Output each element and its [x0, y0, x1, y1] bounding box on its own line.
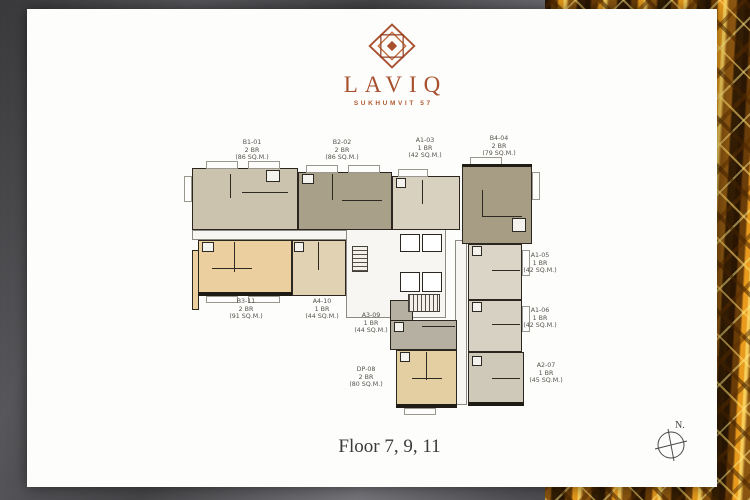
- interior-wall: [482, 190, 483, 216]
- balcony: [206, 161, 238, 169]
- balcony: [348, 165, 380, 173]
- floor-plan: B1-012 BR(86 SQ.M.) B2-022 BR(86 SQ.M.) …: [182, 130, 582, 425]
- exterior-wall: [468, 402, 524, 406]
- unit-label-b2-02: B2-022 BR(86 SQ.M.): [310, 139, 374, 162]
- interior-wall: [318, 242, 319, 270]
- unit-label-a1-06: A1-061 BR(42 SQ.M.): [508, 307, 572, 330]
- interior-wall: [342, 200, 382, 201]
- backdrop: LAVIQ SUKHUMVIT 57: [0, 0, 750, 500]
- unit-label-a1-03: A1-031 BR(42 SQ.M.): [393, 137, 457, 160]
- unit-label-b4-04: B4-042 BR(79 SQ.M.): [467, 135, 531, 158]
- interior-wall: [212, 268, 252, 269]
- balcony: [532, 172, 540, 200]
- interior-wall: [426, 352, 427, 380]
- unit-label-b3-11: B3-112 BR(91 SQ.M.): [214, 298, 278, 321]
- stairs-icon: [408, 294, 440, 312]
- floor-title: Floor 7, 9, 11: [307, 436, 472, 458]
- north-label: N.: [675, 420, 685, 431]
- unit-label-b1-01: B1-012 BR(86 SQ.M.): [220, 139, 284, 162]
- exterior-wall: [462, 164, 532, 167]
- unit-b1-01: [192, 168, 298, 230]
- north-compass-icon: N.: [637, 413, 707, 473]
- unit-label-a2-07: A2-071 BR(45 SQ.M.): [514, 362, 578, 385]
- unit-label-dp-08: DP-082 BR(80 SQ.M.): [334, 366, 398, 389]
- interior-wall: [242, 192, 288, 193]
- bathroom: [472, 302, 482, 312]
- interior-wall: [422, 326, 455, 327]
- balcony: [398, 169, 428, 177]
- unit-label-a4-10: A4-101 BR(44 SQ.M.): [290, 298, 354, 321]
- unit-b4-04: [462, 164, 532, 244]
- bathroom: [472, 356, 482, 366]
- floorplan-page: LAVIQ SUKHUMVIT 57: [27, 9, 717, 487]
- interior-wall: [332, 174, 333, 200]
- stairs-icon: [352, 246, 368, 272]
- exterior-wall: [198, 292, 292, 296]
- bathroom: [202, 242, 214, 252]
- elevator-icon: [400, 234, 420, 252]
- interior-wall: [422, 180, 423, 204]
- balcony: [306, 165, 338, 173]
- bathroom: [396, 178, 406, 188]
- interior-wall: [412, 378, 442, 379]
- exterior-wall: [396, 404, 457, 408]
- elevator-icon: [422, 272, 442, 292]
- bathroom: [294, 242, 304, 252]
- brand-logo: LAVIQ SUKHUMVIT 57: [312, 22, 472, 107]
- bathroom: [302, 174, 314, 184]
- unit-label-a1-05: A1-051 BR(42 SQ.M.): [508, 252, 572, 275]
- brand-subtitle: SUKHUMVIT 57: [312, 100, 472, 107]
- interior-wall: [482, 216, 522, 217]
- elevator-icon: [400, 272, 420, 292]
- balcony: [404, 408, 436, 415]
- bathroom: [400, 352, 410, 362]
- laviq-ornament-icon: [366, 22, 418, 70]
- bathroom: [512, 218, 526, 232]
- unit-b3-11-bay: [192, 250, 199, 310]
- interior-wall: [230, 174, 231, 198]
- bathroom: [266, 170, 280, 182]
- bathroom: [472, 246, 482, 256]
- balcony: [248, 161, 280, 169]
- elevator-icon: [422, 234, 442, 252]
- brand-name: LAVIQ: [312, 72, 472, 98]
- balcony: [184, 176, 192, 202]
